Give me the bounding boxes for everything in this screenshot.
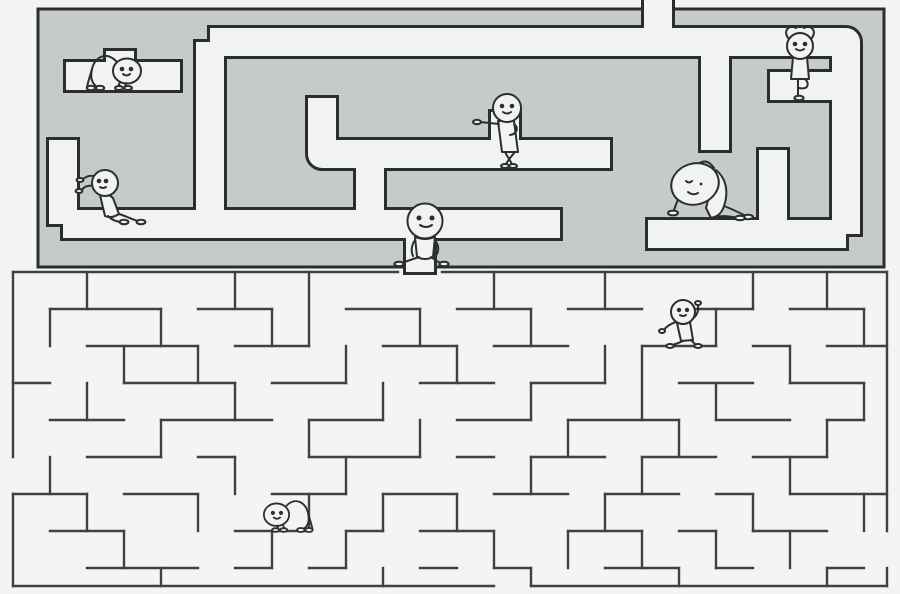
top-maze [38, 0, 884, 275]
bottom-maze [13, 272, 887, 586]
character-waving-figure-bottom-maze [659, 300, 702, 348]
maze-illustration [0, 0, 900, 594]
character-crawling-figure-bottom [264, 501, 313, 532]
